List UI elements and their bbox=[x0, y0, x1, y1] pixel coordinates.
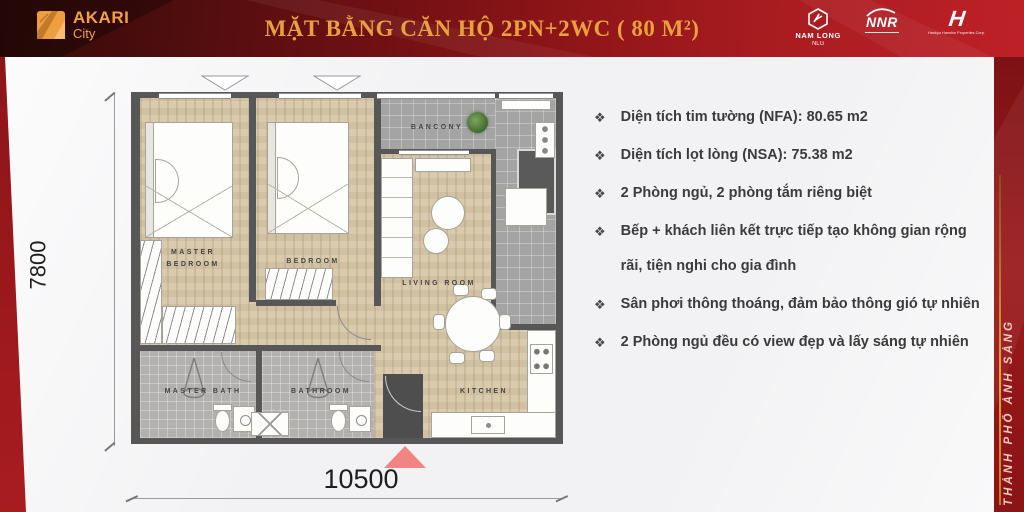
feature-item: ❖ 2 Phòng ngủ đều có view đẹp và lấy sán… bbox=[594, 325, 990, 360]
diamond-bullet-icon: ❖ bbox=[594, 138, 606, 173]
dimension-line-horizontal bbox=[133, 498, 563, 499]
window bbox=[279, 93, 361, 99]
brand-name: AKARI bbox=[73, 9, 129, 26]
diamond-bullet-icon: ❖ bbox=[594, 100, 606, 135]
chair-icon bbox=[499, 314, 511, 330]
wall bbox=[131, 438, 563, 444]
washer-icon bbox=[505, 188, 547, 226]
partner-logos: NAM LONG NLG NNR H Hankyu Hanshin Proper… bbox=[795, 8, 990, 47]
dimension-width-label: 10500 bbox=[296, 464, 426, 495]
feature-item: ❖ Diện tích tim tường (NFA): 80.65 m2 bbox=[594, 100, 990, 135]
toilet-tank bbox=[213, 404, 232, 411]
feature-text: Sân phơi thông thoáng, đảm bảo thông gió… bbox=[621, 287, 980, 322]
shelf-icon bbox=[501, 100, 551, 110]
laundry-box-icon bbox=[251, 412, 289, 436]
feature-list: ❖ Diện tích tim tường (NFA): 80.65 m2 ❖ … bbox=[594, 100, 990, 363]
faucet bbox=[486, 423, 491, 428]
feature-text: Diện tích tim tường (NFA): 80.65 m2 bbox=[621, 100, 868, 135]
nam-long-logo: NAM LONG NLG bbox=[795, 8, 841, 47]
feature-text: 2 Phòng ngủ đều có view đẹp và lấy sáng … bbox=[621, 325, 969, 360]
room-label-balcony: BANCONY bbox=[389, 122, 485, 134]
bed-icon bbox=[145, 122, 233, 238]
window bbox=[499, 93, 553, 99]
dimension-line-vertical bbox=[114, 94, 115, 446]
feature-item: ❖ Diện tích lọt lòng (NSA): 75.38 m2 bbox=[594, 138, 990, 173]
toilet-icon bbox=[215, 410, 230, 432]
nnr-logo: NNR bbox=[865, 8, 899, 33]
feature-text: 2 Phòng ngủ, 2 phòng tắm riêng biệt bbox=[621, 176, 872, 211]
dimension-height-label: 7800 bbox=[25, 241, 51, 290]
wall bbox=[556, 92, 563, 444]
brand-text: AKARI City bbox=[73, 9, 129, 40]
chair-icon bbox=[479, 350, 495, 362]
hankyu-icon: H bbox=[947, 8, 966, 30]
nnr-label: NNR bbox=[866, 15, 898, 29]
ribbon-accent-line bbox=[999, 175, 1001, 505]
room-label-master-bedroom: MASTER BEDROOM bbox=[149, 247, 237, 271]
hankyu-label: Hankyu Hanshin Properties Corp. bbox=[928, 31, 985, 35]
wall bbox=[374, 92, 381, 306]
nnr-tagline-line bbox=[865, 32, 899, 33]
feature-item: ❖ Bếp + khách liên kết trực tiếp tạo khô… bbox=[594, 214, 990, 284]
vanity-icon bbox=[349, 406, 371, 432]
nam-long-icon bbox=[808, 8, 828, 30]
feature-text: Bếp + khách liên kết trực tiếp tạo không… bbox=[621, 214, 990, 284]
sofa-icon bbox=[381, 158, 413, 278]
toilet-icon bbox=[331, 410, 346, 432]
coffee-table-icon bbox=[431, 196, 465, 230]
basin bbox=[240, 415, 251, 426]
entrance-arrow-icon bbox=[384, 446, 426, 468]
dining-table-icon bbox=[445, 296, 501, 352]
wall bbox=[256, 300, 336, 306]
nam-long-label: NAM LONG bbox=[795, 32, 841, 40]
room-label-living-room: LIVING ROOM bbox=[389, 278, 489, 290]
window-awning-icon bbox=[313, 75, 361, 91]
coffee-table-icon bbox=[423, 228, 449, 254]
room-label-master-bath: MASTER BATH bbox=[153, 386, 253, 398]
room-label-kitchen: KITCHEN bbox=[439, 386, 529, 398]
tv-cabinet-icon bbox=[415, 158, 471, 172]
wall bbox=[249, 92, 256, 302]
akari-city-logo: AKARI City bbox=[36, 9, 129, 40]
feature-item: ❖ 2 Phòng ngủ, 2 phòng tắm riêng biệt bbox=[594, 176, 990, 211]
diamond-bullet-icon: ❖ bbox=[594, 214, 606, 284]
diamond-bullet-icon: ❖ bbox=[594, 176, 606, 211]
hankyu-logo: H Hankyu Hanshin Properties Corp. bbox=[923, 8, 990, 36]
feature-text: Diện tích lọt lòng (NSA): 75.38 m2 bbox=[621, 138, 853, 173]
room-label-bathroom: BATHROOM bbox=[271, 386, 371, 398]
room-label-bedroom: BEDROOM bbox=[269, 256, 357, 268]
brand-sub: City bbox=[73, 27, 129, 40]
diamond-bullet-icon: ❖ bbox=[594, 325, 606, 360]
toilet-tank bbox=[329, 404, 348, 411]
side-banner: THÀNH PHỐ ÁNH SÁNG bbox=[994, 57, 1024, 512]
wardrobe-icon bbox=[265, 268, 333, 300]
akari-logo-icon bbox=[36, 10, 66, 40]
stove-icon bbox=[530, 344, 553, 374]
sliding-door bbox=[399, 150, 469, 155]
wardrobe-icon bbox=[162, 306, 236, 344]
page-title: MẶT BẰNG CĂN HỘ 2PN+2WC ( 80 M²) bbox=[265, 16, 700, 42]
chair-icon bbox=[449, 352, 465, 364]
nam-long-sublabel: NLG bbox=[812, 41, 824, 47]
slide: AKARI City MẶT BẰNG CĂN HỘ 2PN+2WC ( 80 … bbox=[0, 0, 1024, 512]
window bbox=[159, 93, 231, 99]
diamond-bullet-icon: ❖ bbox=[594, 287, 606, 322]
chair-icon bbox=[433, 314, 445, 330]
water-heater-icon bbox=[535, 122, 555, 158]
sink-icon bbox=[471, 416, 505, 434]
duvet bbox=[146, 186, 232, 237]
basin bbox=[356, 415, 367, 426]
wall bbox=[131, 92, 140, 444]
ribbon-text: THÀNH PHỐ ÁNH SÁNG bbox=[1003, 319, 1015, 506]
floor-plan: MASTER BEDROOM BEDROOM LIVING ROOM KITCH… bbox=[131, 92, 563, 444]
bed-icon bbox=[267, 122, 349, 234]
window-awning-icon bbox=[201, 75, 249, 91]
duvet bbox=[268, 184, 348, 234]
feature-item: ❖ Sân phơi thông thoáng, đảm bảo thông g… bbox=[594, 287, 990, 322]
balcony-railing bbox=[377, 93, 495, 99]
header-bar: AKARI City MẶT BẰNG CĂN HỘ 2PN+2WC ( 80 … bbox=[0, 0, 1024, 57]
